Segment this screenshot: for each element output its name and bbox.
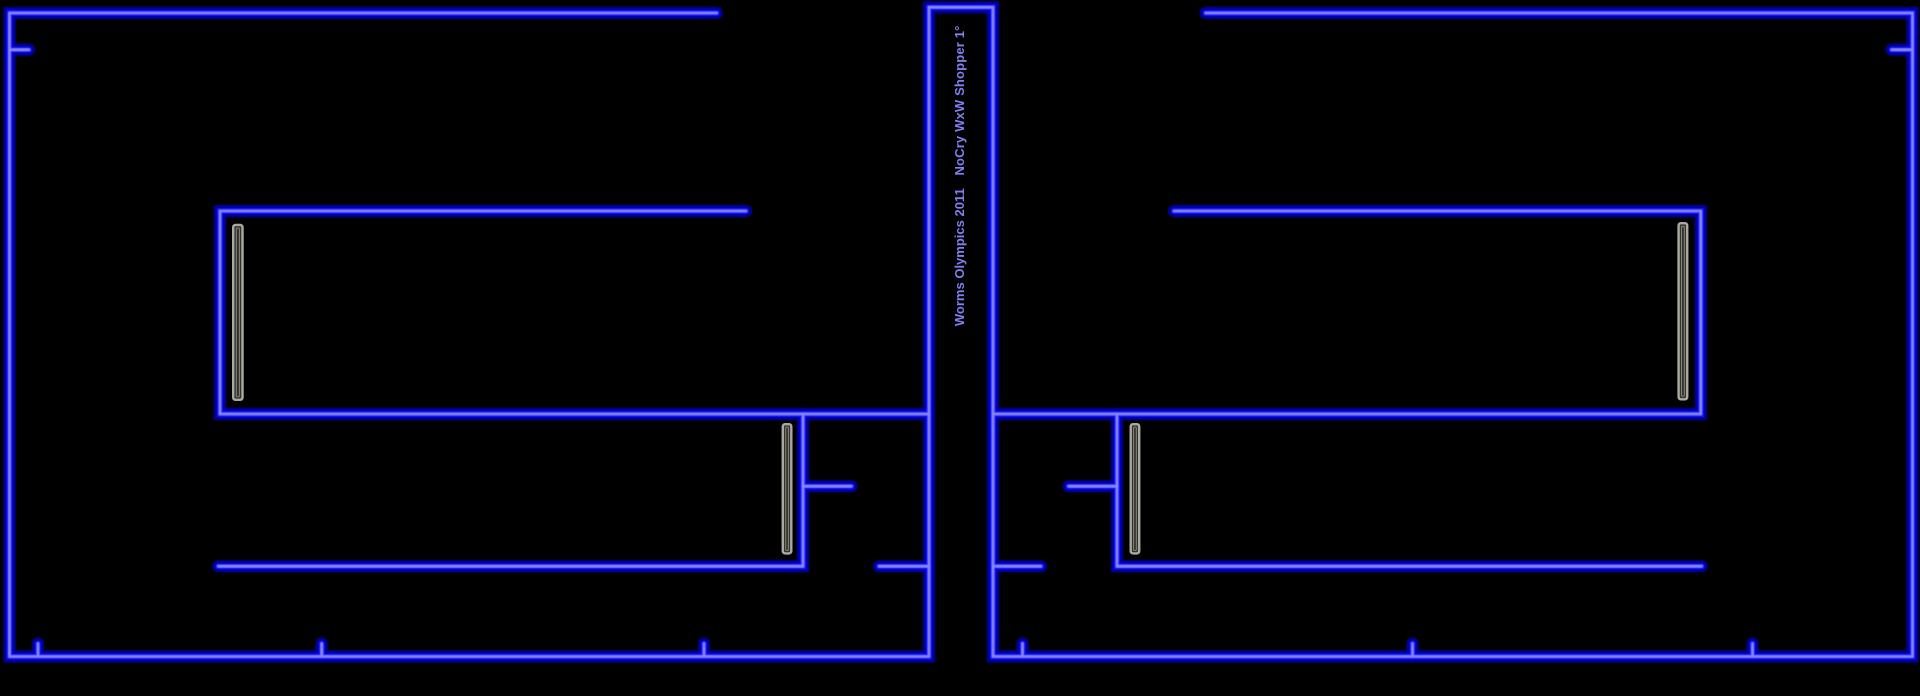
svg-text:NoCry WxW Shopper 1°: NoCry WxW Shopper 1° (952, 26, 967, 176)
svg-text:Worms Olympics 2011: Worms Olympics 2011 (952, 188, 967, 326)
